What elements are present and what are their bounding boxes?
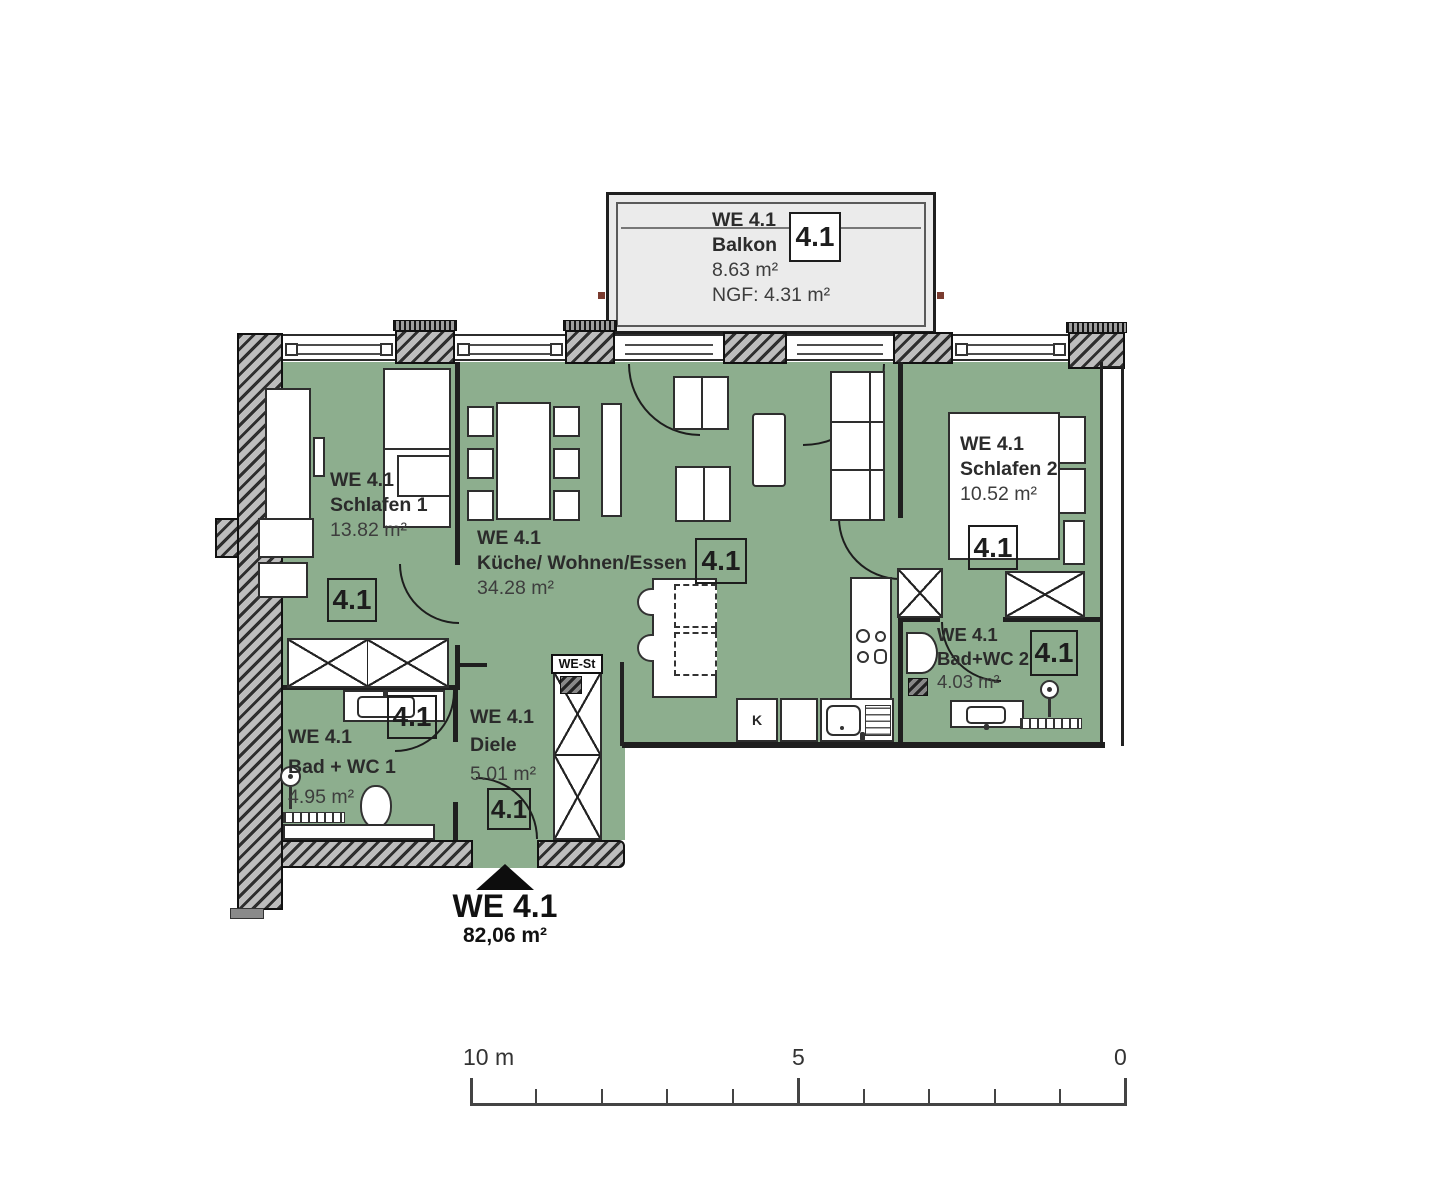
- balcony-post: [937, 292, 944, 299]
- wall-pier: [565, 330, 615, 364]
- window-north-1: [283, 334, 395, 361]
- window-handle: [457, 343, 470, 356]
- kitchen-island-unit-dashed: [674, 632, 717, 676]
- bad1-we: WE 4.1: [288, 722, 396, 752]
- shaft-label-text: WE-St: [559, 657, 596, 671]
- dining-chair: [553, 448, 580, 479]
- fridge-label: K: [752, 712, 762, 728]
- shower-channel-bad2: [1020, 718, 1082, 729]
- cooktop-burner: [856, 629, 870, 643]
- cooktop-burner-oval: [874, 649, 887, 664]
- kitchen-fridge: K: [736, 698, 778, 742]
- window-handle: [550, 343, 563, 356]
- sofa-cushion-line: [832, 469, 883, 471]
- washbasin-bad2: [966, 706, 1006, 724]
- wall-corridor-east-of-shaft: [620, 662, 624, 746]
- wardrobe-cell: [289, 640, 368, 686]
- shaft-label: WE-St: [551, 654, 603, 674]
- bad1-name: Bad + WC 1: [288, 752, 396, 782]
- bed-pillow-schlafen2: [1058, 468, 1086, 514]
- sink-tap: [860, 732, 865, 741]
- schlafen1-we: WE 4.1: [330, 468, 428, 493]
- wardrobe-schlafen1: [265, 388, 311, 520]
- wall-pier-northeast: [1068, 332, 1125, 369]
- window-north-2: [455, 334, 565, 361]
- balcony-door-right: [787, 334, 893, 361]
- room-label-schlafen2: WE 4.1 Schlafen 2 10.52 m²: [960, 432, 1058, 507]
- wall-pier: [723, 332, 787, 364]
- unit-tag-text: 4.1: [974, 532, 1013, 564]
- balkon-ngf: NGF: 4.31 m²: [712, 283, 830, 308]
- unit-tag-schlafen2: 4.1: [968, 525, 1018, 570]
- bathtub-bad1: [283, 824, 435, 840]
- bed-blanket-line: [383, 448, 451, 450]
- dining-chair: [467, 448, 494, 479]
- room-label-kueche: WE 4.1 Küche/ Wohnen/Essen 34.28 m²: [477, 526, 687, 601]
- window-handle: [1053, 343, 1066, 356]
- scale-5-text: 5: [792, 1044, 805, 1070]
- room-label-schlafen1: WE 4.1 Schlafen 1 13.82 m²: [330, 468, 428, 543]
- wardrobe-schlafen2: [1005, 571, 1085, 618]
- window-glazing: [465, 344, 555, 355]
- shower-channel-bad1: [283, 812, 345, 823]
- window-glazing: [625, 344, 713, 355]
- unit-tag-text: 4.1: [333, 584, 372, 616]
- bad2-name: Bad+WC 2: [937, 647, 1029, 671]
- wall-pier: [893, 332, 953, 364]
- armchair-split: [703, 468, 705, 520]
- room-label-diele: WE 4.1 Diele 5.01 m²: [470, 703, 536, 788]
- scale-tick-major: [470, 1078, 473, 1103]
- partition-schlafen1-living-upper: [455, 362, 460, 565]
- toilet-bad2: [906, 632, 938, 674]
- sink-bowl: [826, 705, 861, 736]
- scale-0-text: 0: [1114, 1044, 1127, 1070]
- scale-label-5: 5: [792, 1044, 805, 1071]
- window-glazing: [963, 344, 1058, 355]
- desk-chair-schlafen1: [313, 437, 325, 477]
- shaft-cell: [555, 756, 600, 838]
- kueche-area: 34.28 m²: [477, 576, 687, 601]
- entry-area-label: 82,06 m²: [400, 924, 610, 948]
- cooktop-burner: [875, 631, 886, 642]
- partition-bad1-diele-lower: [453, 802, 458, 840]
- diele-area: 5.01 m²: [470, 760, 536, 788]
- sideboard-living: [601, 403, 622, 517]
- dining-chair: [467, 490, 494, 521]
- entry-unit-label: WE 4.1: [400, 888, 610, 925]
- window-handle: [380, 343, 393, 356]
- dining-chair: [553, 490, 580, 521]
- balcony-post: [598, 292, 605, 299]
- shower-stem-bad2: [1048, 699, 1051, 717]
- room-label-bad1: WE 4.1 Bad + WC 1 4.95 m²: [288, 722, 396, 813]
- bad1-area: 4.95 m²: [288, 782, 396, 812]
- wall-west-notch: [215, 518, 239, 558]
- partition-living-schlafen2-upper: [898, 362, 903, 518]
- scale-tick-minor: [994, 1089, 996, 1103]
- entrance-arrow: [476, 864, 534, 890]
- wall-south-entry-right: [537, 840, 625, 868]
- scale-tick-minor: [601, 1089, 603, 1103]
- vanity-bad2: [950, 700, 1024, 728]
- entry-unit-text: WE 4.1: [453, 888, 558, 924]
- shower-head-center: [1047, 687, 1052, 692]
- shaft-box-living: [897, 568, 943, 618]
- unit-tag-bad1: 4.1: [387, 695, 437, 739]
- unit-tag-text: 4.1: [796, 221, 835, 253]
- nightstand-schlafen1: [258, 518, 314, 558]
- window-glazing: [797, 344, 883, 355]
- installation-shaft: [553, 672, 602, 840]
- wardrobe-cell: [368, 640, 447, 686]
- unit-tag-text: 4.1: [491, 794, 527, 825]
- bad2-we: WE 4.1: [937, 623, 1029, 647]
- kueche-we: WE 4.1: [477, 526, 687, 551]
- sink-drainer: [865, 705, 891, 736]
- scale-tick-minor: [535, 1089, 537, 1103]
- kitchen-tall-unit: [850, 577, 892, 700]
- wardrobe-row-schlafen1: [287, 638, 449, 688]
- scale-tick-minor: [863, 1089, 865, 1103]
- scale-tick-minor: [732, 1089, 734, 1103]
- window-handle: [285, 343, 298, 356]
- unit-tag-text: 4.1: [393, 701, 432, 733]
- bad2-area: 4.03 m²: [937, 670, 1029, 694]
- entry-area-text: 82,06 m²: [463, 924, 547, 947]
- unit-tag-text: 4.1: [1035, 637, 1074, 669]
- partition-diele-living: [455, 663, 487, 667]
- wall-east-top: [1100, 366, 1124, 368]
- schlafen2-name: Schlafen 2: [960, 457, 1058, 482]
- wall-east-inner: [1100, 362, 1103, 746]
- sofa-cushion-line: [832, 421, 883, 423]
- schlafen1-area: 13.82 m²: [330, 518, 428, 543]
- dining-chair: [467, 406, 494, 437]
- armchair-split: [701, 378, 703, 428]
- wall-pier: [395, 330, 455, 364]
- unit-tag-diele: 4.1: [487, 788, 531, 830]
- scale-tick-minor: [666, 1089, 668, 1103]
- scale-tick-minor: [928, 1089, 930, 1103]
- unit-tag-bad2: 4.1: [1030, 630, 1078, 676]
- bed-pillow-schlafen2: [1058, 416, 1086, 464]
- wall-south-west: [281, 840, 473, 868]
- room-label-bad2: WE 4.1 Bad+WC 2 4.03 m²: [937, 623, 1029, 694]
- schlafen2-we: WE 4.1: [960, 432, 1058, 457]
- scale-tick-major: [1124, 1078, 1127, 1103]
- window-north-3: [953, 334, 1068, 361]
- schlafen2-area: 10.52 m²: [960, 482, 1058, 507]
- unit-tag-kueche: 4.1: [695, 538, 747, 584]
- nightstand-schlafen2: [1063, 520, 1085, 565]
- kueche-name: Küche/ Wohnen/Essen: [477, 551, 687, 576]
- scale-tick-major: [797, 1078, 800, 1103]
- unit-tag-schlafen1: 4.1: [327, 578, 377, 622]
- shaft-hatch-square: [560, 676, 582, 694]
- partition-living-bad2: [898, 620, 903, 744]
- scale-label-0: 0: [1114, 1044, 1127, 1071]
- unit-tag-text: 4.1: [702, 545, 741, 577]
- basin-tap: [984, 724, 989, 730]
- window-handle: [955, 343, 968, 356]
- sink-drain-dot: [840, 726, 844, 730]
- window-glazing: [293, 344, 385, 355]
- schlafen1-name: Schlafen 1: [330, 493, 428, 518]
- floor-plan: WE 4.1 Balkon 8.63 m² NGF: 4.31 m² 4.1: [0, 0, 1440, 1198]
- armchair-living: [675, 466, 731, 522]
- sofa: [830, 371, 885, 521]
- scale-label-10m: 10 m: [463, 1044, 514, 1071]
- kitchen-cabinet: [780, 698, 818, 742]
- dresser-schlafen1: [258, 562, 308, 598]
- scale-baseline: [470, 1103, 1127, 1106]
- dining-table: [496, 402, 551, 520]
- shower-head-bad2: [1040, 680, 1059, 699]
- dining-chair: [553, 406, 580, 437]
- scale-10m-text: 10 m: [463, 1044, 514, 1070]
- diele-we: WE 4.1: [470, 703, 536, 731]
- wall-east-outer: [1121, 366, 1124, 746]
- sofa-backrest-line: [869, 373, 871, 519]
- wall-west-cap: [230, 908, 264, 919]
- wall-south-kitchen: [622, 742, 1105, 748]
- shaft-hatch-bad2: [908, 678, 928, 696]
- scale-tick-minor: [1059, 1089, 1061, 1103]
- kitchen-sink-unit: [820, 698, 894, 742]
- cooktop-burner: [857, 651, 869, 663]
- armchair-living: [673, 376, 729, 430]
- coffee-table: [752, 413, 786, 487]
- unit-tag-balkon: 4.1: [789, 212, 841, 262]
- diele-name: Diele: [470, 731, 536, 759]
- balcony-door-left: [615, 334, 723, 361]
